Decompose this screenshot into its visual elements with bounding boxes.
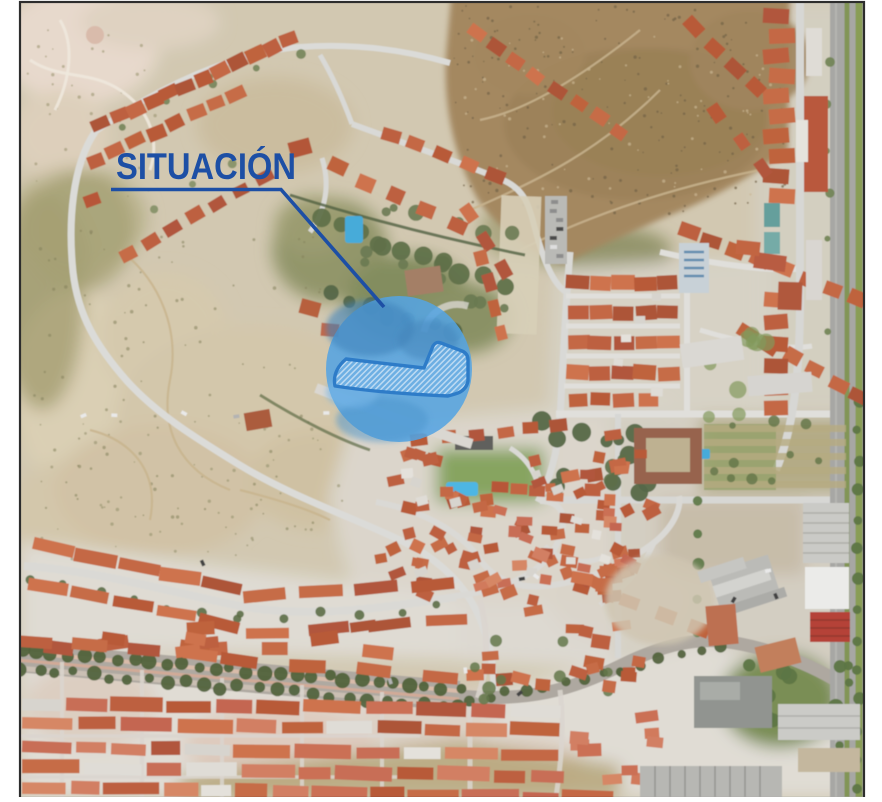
svg-text:SITUACIÓN: SITUACIÓN [116,145,296,187]
